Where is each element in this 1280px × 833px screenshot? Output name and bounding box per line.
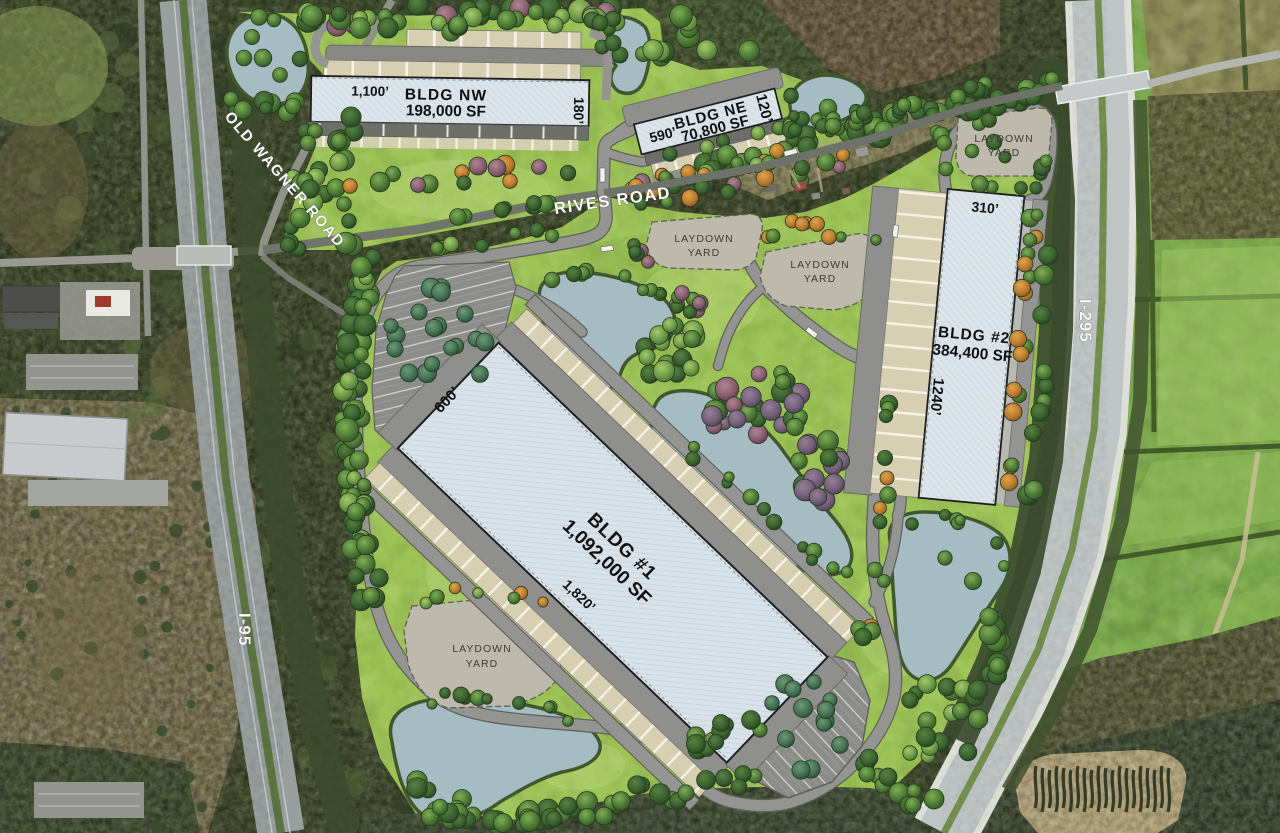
svg-text:I-95: I-95 [235,613,254,646]
svg-text:YARD: YARD [988,147,1020,159]
svg-text:YARD: YARD [804,273,836,285]
svg-text:198,000 SF: 198,000 SF [406,102,486,120]
svg-text:LAYDOWN: LAYDOWN [452,643,511,655]
svg-text:1240’: 1240’ [926,377,946,416]
svg-text:180’: 180’ [571,97,587,124]
svg-text:LAYDOWN: LAYDOWN [790,259,849,271]
svg-text:1,100’: 1,100’ [351,83,389,99]
svg-text:YARD: YARD [688,247,720,259]
svg-text:LAYDOWN: LAYDOWN [974,133,1033,145]
svg-text:310’: 310’ [971,198,1000,216]
svg-text:I-295: I-295 [1076,299,1095,343]
svg-text:LAYDOWN: LAYDOWN [674,233,733,245]
svg-text:YARD: YARD [466,658,498,670]
